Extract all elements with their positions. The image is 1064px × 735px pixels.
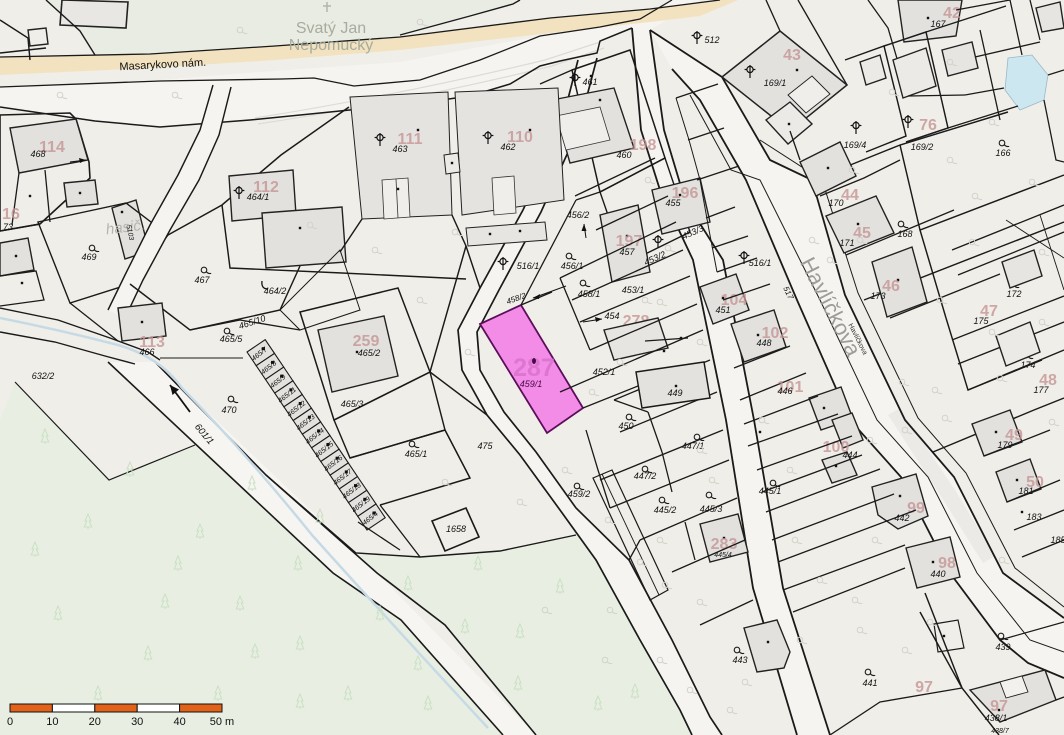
svg-text:470: 470 bbox=[221, 405, 236, 415]
svg-text:632/2: 632/2 bbox=[32, 371, 55, 381]
svg-text:468: 468 bbox=[30, 149, 45, 159]
svg-text:516/1: 516/1 bbox=[517, 261, 540, 271]
svg-text:452/1: 452/1 bbox=[593, 367, 616, 377]
svg-text:97: 97 bbox=[915, 679, 933, 696]
svg-text:175: 175 bbox=[973, 316, 989, 326]
svg-text:451: 451 bbox=[715, 305, 730, 315]
svg-text:445/1: 445/1 bbox=[759, 486, 782, 496]
svg-text:99: 99 bbox=[907, 500, 925, 517]
svg-text:20: 20 bbox=[89, 716, 101, 728]
svg-text:440: 440 bbox=[930, 569, 945, 579]
svg-text:448: 448 bbox=[756, 338, 771, 348]
svg-text:171: 171 bbox=[839, 238, 854, 248]
svg-text:169/2: 169/2 bbox=[911, 142, 934, 152]
svg-text:464/2: 464/2 bbox=[264, 286, 287, 296]
svg-text:43: 43 bbox=[783, 47, 801, 64]
svg-text:44: 44 bbox=[841, 187, 859, 204]
svg-text:512: 512 bbox=[704, 35, 719, 45]
svg-text:446: 446 bbox=[777, 386, 792, 396]
svg-text:45: 45 bbox=[853, 225, 871, 242]
svg-text:447/1: 447/1 bbox=[682, 441, 705, 451]
svg-text:50 m: 50 m bbox=[210, 716, 234, 728]
svg-text:198: 198 bbox=[630, 137, 657, 154]
svg-text:459/2: 459/2 bbox=[568, 489, 591, 499]
svg-text:40: 40 bbox=[173, 716, 185, 728]
svg-text:464/1: 464/1 bbox=[247, 192, 270, 202]
svg-text:73: 73 bbox=[3, 222, 13, 232]
svg-text:42: 42 bbox=[943, 5, 961, 22]
svg-text:172: 172 bbox=[1006, 289, 1021, 299]
svg-text:454: 454 bbox=[604, 311, 619, 321]
svg-text:166: 166 bbox=[995, 148, 1010, 158]
svg-text:462: 462 bbox=[500, 142, 515, 152]
svg-text:463: 463 bbox=[392, 144, 407, 154]
svg-text:475: 475 bbox=[477, 441, 493, 451]
svg-text:460: 460 bbox=[616, 150, 631, 160]
svg-text:443: 443 bbox=[732, 655, 747, 665]
svg-text:16: 16 bbox=[2, 206, 20, 223]
svg-text:450: 450 bbox=[618, 421, 633, 431]
svg-text:456/1: 456/1 bbox=[561, 261, 584, 271]
svg-text:455: 455 bbox=[665, 198, 681, 208]
svg-text:461: 461 bbox=[582, 77, 597, 87]
svg-text:465/1: 465/1 bbox=[405, 449, 428, 459]
svg-text:445/4: 445/4 bbox=[714, 552, 732, 559]
svg-text:466: 466 bbox=[139, 347, 154, 357]
svg-text:469: 469 bbox=[81, 252, 96, 262]
svg-text:10: 10 bbox=[46, 716, 58, 728]
svg-text:439: 439 bbox=[995, 642, 1010, 652]
svg-text:445/2: 445/2 bbox=[654, 505, 677, 515]
svg-text:30: 30 bbox=[131, 716, 143, 728]
svg-text:465/3: 465/3 bbox=[341, 399, 364, 409]
svg-text:Svatý Jan: Svatý Jan bbox=[296, 20, 366, 37]
svg-text:185: 185 bbox=[1050, 535, 1064, 545]
svg-text:0: 0 bbox=[7, 716, 13, 728]
svg-text:169/4: 169/4 bbox=[844, 140, 867, 150]
svg-text:170: 170 bbox=[828, 198, 843, 208]
svg-text:438/7: 438/7 bbox=[991, 728, 1010, 735]
svg-text:177: 177 bbox=[1033, 385, 1049, 395]
svg-text:453/1: 453/1 bbox=[622, 285, 645, 295]
svg-text:465/2: 465/2 bbox=[358, 348, 381, 358]
svg-text:459/1: 459/1 bbox=[520, 379, 543, 389]
svg-text:442: 442 bbox=[894, 513, 909, 523]
svg-text:465/5: 465/5 bbox=[220, 334, 244, 344]
svg-text:447/2: 447/2 bbox=[634, 471, 657, 481]
svg-text:444: 444 bbox=[842, 450, 857, 460]
svg-text:449: 449 bbox=[667, 388, 682, 398]
svg-text:441: 441 bbox=[862, 678, 877, 688]
svg-text:1658: 1658 bbox=[446, 524, 466, 534]
svg-text:458/1: 458/1 bbox=[578, 289, 601, 299]
svg-text:Nepomucký: Nepomucký bbox=[289, 37, 373, 54]
svg-text:76: 76 bbox=[919, 117, 937, 134]
svg-text:467: 467 bbox=[194, 275, 210, 285]
svg-text:169/1: 169/1 bbox=[764, 78, 787, 88]
svg-text:173: 173 bbox=[870, 291, 885, 301]
